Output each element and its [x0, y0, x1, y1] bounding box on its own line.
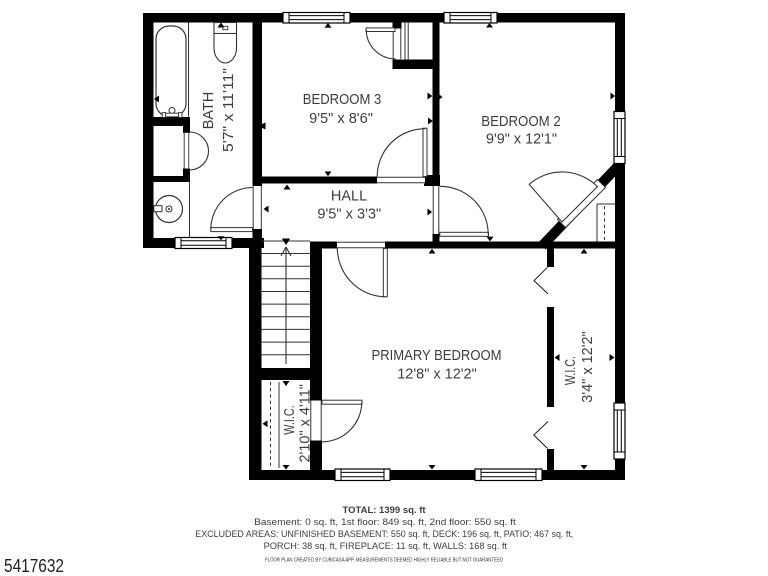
svg-text:9'5" x 8'6": 9'5" x 8'6"	[309, 111, 373, 127]
svg-text:5417632: 5417632	[4, 555, 64, 576]
svg-text:Basement: 0 sq. ft, 1st floor:: Basement: 0 sq. ft, 1st floor: 849 sq. f…	[254, 517, 516, 528]
svg-text:12'8" x 12'2": 12'8" x 12'2"	[397, 367, 477, 383]
svg-text:TOTAL: 1399 sq. ft: TOTAL: 1399 sq. ft	[342, 505, 426, 516]
svg-text:PORCH: 38 sq. ft, FIREPLACE: 1: PORCH: 38 sq. ft, FIREPLACE: 11 sq. ft, …	[264, 541, 508, 552]
svg-text:5'7" x 11'11": 5'7" x 11'11"	[221, 68, 237, 152]
svg-text:BATH: BATH	[201, 92, 217, 130]
svg-text:2'10" x 4'11": 2'10" x 4'11"	[298, 384, 314, 462]
svg-text:HALL: HALL	[331, 189, 367, 205]
svg-text:9'5" x 3'3": 9'5" x 3'3"	[317, 207, 381, 223]
svg-text:FLOOR PLAN CREATED BY CUBICASA: FLOOR PLAN CREATED BY CUBICASA APP. MEAS…	[265, 558, 503, 564]
svg-text:3'4" x 12'2": 3'4" x 12'2"	[580, 331, 596, 402]
svg-text:W.I.C.: W.I.C.	[282, 405, 298, 435]
svg-text:PRIMARY BEDROOM: PRIMARY BEDROOM	[372, 348, 502, 364]
svg-text:BEDROOM 3: BEDROOM 3	[303, 92, 382, 108]
svg-text:EXCLUDED AREAS: UNFINISHED BAS: EXCLUDED AREAS: UNFINISHED BASEMENT: 550…	[195, 529, 573, 540]
svg-text:W.I.C.: W.I.C.	[563, 356, 579, 385]
svg-text:9'9" x 12'1": 9'9" x 12'1"	[486, 132, 557, 148]
svg-text:BEDROOM 2: BEDROOM 2	[481, 114, 561, 130]
